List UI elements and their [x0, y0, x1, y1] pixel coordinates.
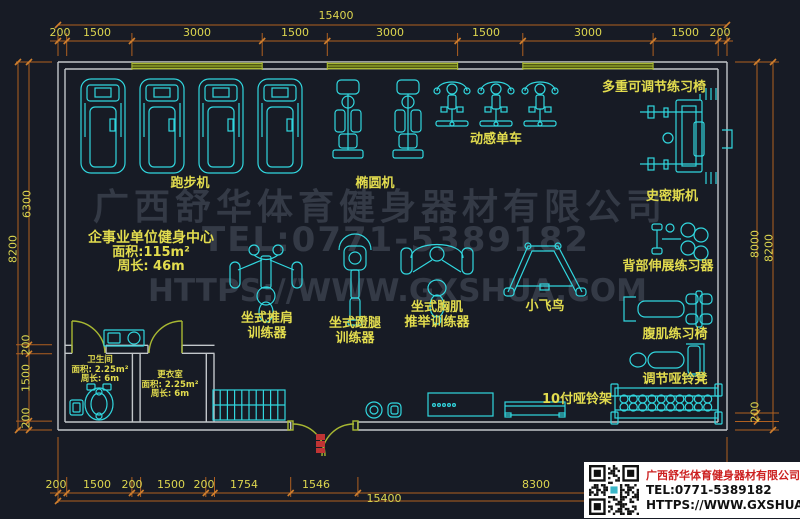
gym-info: 企事业单位健身中心 面积:115m² 周长: 46m: [88, 230, 214, 274]
dimension-label: 1500: [83, 26, 111, 39]
adj-dumbbell-bench-label: 调节哑铃凳: [642, 372, 707, 387]
dimension-label: 8200: [7, 235, 20, 263]
dumbbell-rack-label: 10付哑铃架: [542, 392, 612, 407]
title-block-company: 广西舒华体育健身器材有限公司: [646, 468, 800, 483]
water-cooler-icon: [366, 402, 382, 418]
shoulder-press-label-line1: 坐式推肩: [241, 311, 293, 326]
dimension-label: 200: [122, 478, 143, 491]
dimension-label: 8000: [749, 230, 762, 258]
title-block: 广西舒华体育健身器材有限公司 TEL:0771-5389182 HTTPS://…: [584, 462, 800, 518]
dimension-label: 3000: [183, 26, 211, 39]
treadmill-icon: [81, 79, 125, 173]
treadmill-icon: [258, 79, 302, 173]
elliptical-icon: [393, 80, 423, 158]
dimension-label: 3000: [376, 26, 404, 39]
dimension-label: 200: [710, 26, 731, 39]
treadmill-label: 跑步机: [170, 176, 209, 191]
dimension-label: 200: [749, 402, 762, 423]
spin-bike-icon: [522, 82, 558, 126]
spin-bike-label: 动感单车: [470, 132, 522, 147]
windows: [132, 62, 653, 70]
dimension-label: 1500: [472, 26, 500, 39]
trash-bin-icon: [70, 400, 83, 415]
spin-bike-icon: [434, 82, 470, 126]
toilet-icon: [85, 384, 113, 420]
chest-press-label: 坐式胸肌 推举训练器: [404, 300, 469, 330]
dimension-label: 1500: [20, 364, 33, 392]
floor-plan: 广西舒华体育健身器材有限公司 TEL:0771-5389182 HTTPS://…: [0, 0, 800, 519]
shoulder-press-label: 坐式推肩 训练器: [241, 311, 293, 341]
locker-info: 更衣室 面积: 2.25m² 周长: 6m: [142, 371, 199, 400]
leg-press-label-line2: 训练器: [329, 331, 381, 346]
shoulder-press-label-line2: 训练器: [241, 326, 293, 341]
chest-press-label-line2: 推举训练器: [404, 315, 469, 330]
dimension-label: 200: [194, 478, 215, 491]
gym-info-area: 面积:115m²: [88, 246, 214, 260]
treadmill-icon: [140, 79, 184, 173]
dimension-label: 200: [50, 26, 71, 39]
ab-chair-label: 腹肌练习椅: [642, 327, 707, 342]
smith-machine-label: 史密斯机: [646, 189, 698, 204]
doors: [72, 321, 358, 456]
locker-perimeter: 周长: 6m: [142, 390, 199, 400]
title-block-website: HTTPS://WWW.GXSHUA.COM: [646, 498, 800, 513]
toilet-info: 卫生间 面积: 2.25m² 周长: 6m: [72, 356, 129, 385]
qr-code: [589, 465, 639, 515]
fly-bird-icon: [504, 243, 586, 296]
gym-info-perimeter: 周长: 46m: [88, 260, 214, 274]
dimension-label: 15400: [367, 492, 402, 505]
dimension-label: 8200: [763, 234, 776, 262]
toilet-perimeter: 周长: 6m: [72, 375, 129, 385]
dimension-label: 3000: [574, 26, 602, 39]
dimension-label: 200: [20, 408, 33, 429]
dimension-label: 1500: [83, 478, 111, 491]
dimension-label: 200: [46, 478, 67, 491]
leg-press-label-line1: 坐式蹬腿: [329, 316, 381, 331]
leg-press-icon: [339, 234, 371, 325]
dimension-label: 1546: [302, 478, 330, 491]
gym-info-title: 企事业单位健身中心: [88, 230, 214, 246]
stool-icon: [388, 403, 401, 417]
dimension-label: 8300: [522, 478, 550, 491]
title-block-tel: TEL:0771-5389182: [646, 483, 800, 498]
ab-chair-icon: [624, 291, 712, 327]
dimension-label: 1500: [671, 26, 699, 39]
reception-desk-icon: [428, 393, 493, 416]
locker-bench-icon: [213, 390, 285, 420]
dimension-label: 1500: [157, 478, 185, 491]
washbasin-icon: [104, 330, 144, 346]
elliptical-label: 椭圆机: [355, 176, 394, 191]
back-extension-label: 背部伸展练习器: [622, 259, 713, 274]
treadmill-icon: [199, 79, 243, 173]
multi-adjust-bench-label: 多重可调节练习椅: [602, 80, 706, 95]
fly-bird-label: 小飞鸟: [525, 299, 564, 314]
dimension-label: 1500: [281, 26, 309, 39]
spin-bike-icon: [478, 82, 514, 126]
back-extension-icon: [652, 223, 708, 260]
entrance-marker-icon: [316, 434, 325, 453]
elliptical-icon: [333, 80, 363, 158]
chest-press-label-line1: 坐式胸肌: [404, 300, 469, 315]
dimension-label: 200: [20, 335, 33, 356]
dimension-label: 1754: [230, 478, 258, 491]
dumbbell-rack-icon: [611, 384, 722, 424]
leg-press-label: 坐式蹬腿 训练器: [329, 316, 381, 346]
dimension-label: 15400: [319, 9, 354, 22]
dimension-label: 6300: [21, 190, 34, 218]
